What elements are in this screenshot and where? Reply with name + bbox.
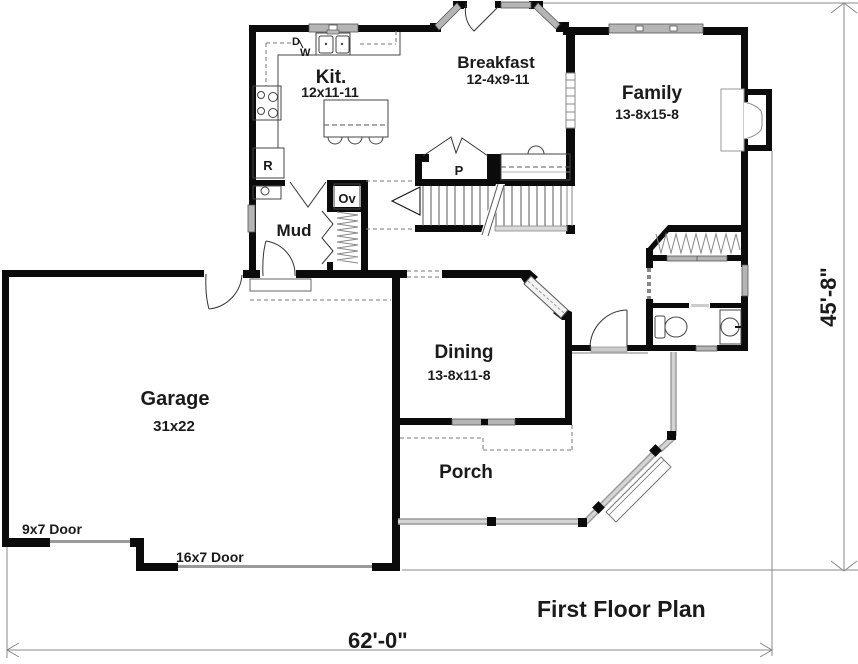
- svg-text:45'-8": 45'-8": [816, 267, 841, 327]
- svg-text:12-4x9-11: 12-4x9-11: [466, 71, 529, 87]
- svg-text:13-8x15-8: 13-8x15-8: [615, 106, 679, 122]
- svg-text:9x7 Door: 9x7 Door: [22, 521, 82, 537]
- svg-text:First Floor Plan: First Floor Plan: [537, 596, 706, 622]
- svg-text:P: P: [455, 163, 464, 178]
- svg-text:D: D: [292, 36, 300, 48]
- svg-text:Porch: Porch: [439, 462, 493, 483]
- svg-text:W: W: [300, 47, 311, 59]
- svg-text:16x7 Door: 16x7 Door: [176, 549, 244, 565]
- svg-text:R: R: [263, 158, 273, 173]
- svg-text:Dining: Dining: [434, 342, 493, 363]
- svg-text:31x22: 31x22: [153, 418, 195, 435]
- svg-text:Garage: Garage: [141, 388, 210, 410]
- svg-text:Ov: Ov: [338, 191, 356, 206]
- svg-text:Breakfast: Breakfast: [457, 53, 535, 72]
- svg-text:62'-0": 62'-0": [348, 628, 408, 653]
- svg-text:Mud: Mud: [277, 221, 312, 240]
- svg-text:13-8x11-8: 13-8x11-8: [427, 367, 490, 383]
- svg-text:12x11-11: 12x11-11: [301, 84, 359, 100]
- svg-text:Family: Family: [622, 83, 683, 104]
